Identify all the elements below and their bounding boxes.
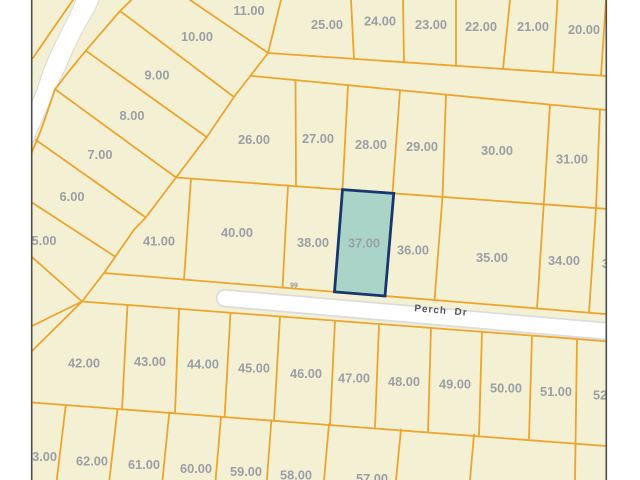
svg-text:99: 99 — [290, 283, 298, 290]
svg-text:50.00: 50.00 — [490, 381, 522, 396]
svg-text:9.00: 9.00 — [145, 68, 170, 83]
svg-text:41.00: 41.00 — [143, 234, 175, 249]
svg-text:22.00: 22.00 — [465, 19, 497, 34]
svg-text:48.00: 48.00 — [388, 374, 420, 389]
svg-text:51.00: 51.00 — [540, 384, 572, 399]
svg-text:8.00: 8.00 — [120, 108, 145, 123]
svg-text:49.00: 49.00 — [439, 377, 471, 392]
svg-text:23.00: 23.00 — [415, 17, 447, 32]
svg-text:31.00: 31.00 — [556, 152, 588, 167]
svg-text:43.00: 43.00 — [134, 354, 166, 369]
svg-text:44.00: 44.00 — [187, 357, 219, 372]
svg-text:37.00: 37.00 — [348, 236, 380, 251]
svg-text:25.00: 25.00 — [311, 17, 343, 32]
svg-text:6.00: 6.00 — [60, 189, 85, 204]
svg-text:47.00: 47.00 — [338, 371, 370, 386]
svg-text:59.00: 59.00 — [230, 464, 262, 479]
svg-text:26.00: 26.00 — [238, 132, 270, 147]
svg-text:62.00: 62.00 — [76, 454, 108, 469]
svg-text:10.00: 10.00 — [181, 29, 213, 44]
svg-text:7.00: 7.00 — [88, 147, 113, 162]
svg-text:60.00: 60.00 — [180, 461, 212, 476]
svg-text:40.00: 40.00 — [221, 225, 253, 240]
svg-text:61.00: 61.00 — [128, 457, 160, 472]
svg-text:34.00: 34.00 — [548, 253, 580, 268]
svg-text:28.00: 28.00 — [355, 137, 387, 152]
svg-text:27.00: 27.00 — [302, 131, 334, 146]
svg-text:57.00: 57.00 — [356, 471, 388, 480]
svg-text:46.00: 46.00 — [290, 366, 322, 381]
svg-text:20.00: 20.00 — [568, 22, 600, 37]
svg-text:11.00: 11.00 — [233, 3, 264, 18]
svg-text:5.00: 5.00 — [32, 233, 57, 248]
svg-text:45.00: 45.00 — [238, 361, 270, 376]
svg-text:30.00: 30.00 — [481, 143, 513, 158]
svg-text:42.00: 42.00 — [68, 356, 100, 371]
svg-text:24.00: 24.00 — [364, 14, 396, 29]
svg-text:36.00: 36.00 — [397, 243, 429, 258]
svg-text:29.00: 29.00 — [406, 139, 438, 154]
svg-text:38.00: 38.00 — [297, 235, 329, 250]
svg-text:35.00: 35.00 — [476, 250, 508, 265]
svg-text:21.00: 21.00 — [517, 19, 549, 34]
svg-text:58.00: 58.00 — [280, 468, 312, 480]
